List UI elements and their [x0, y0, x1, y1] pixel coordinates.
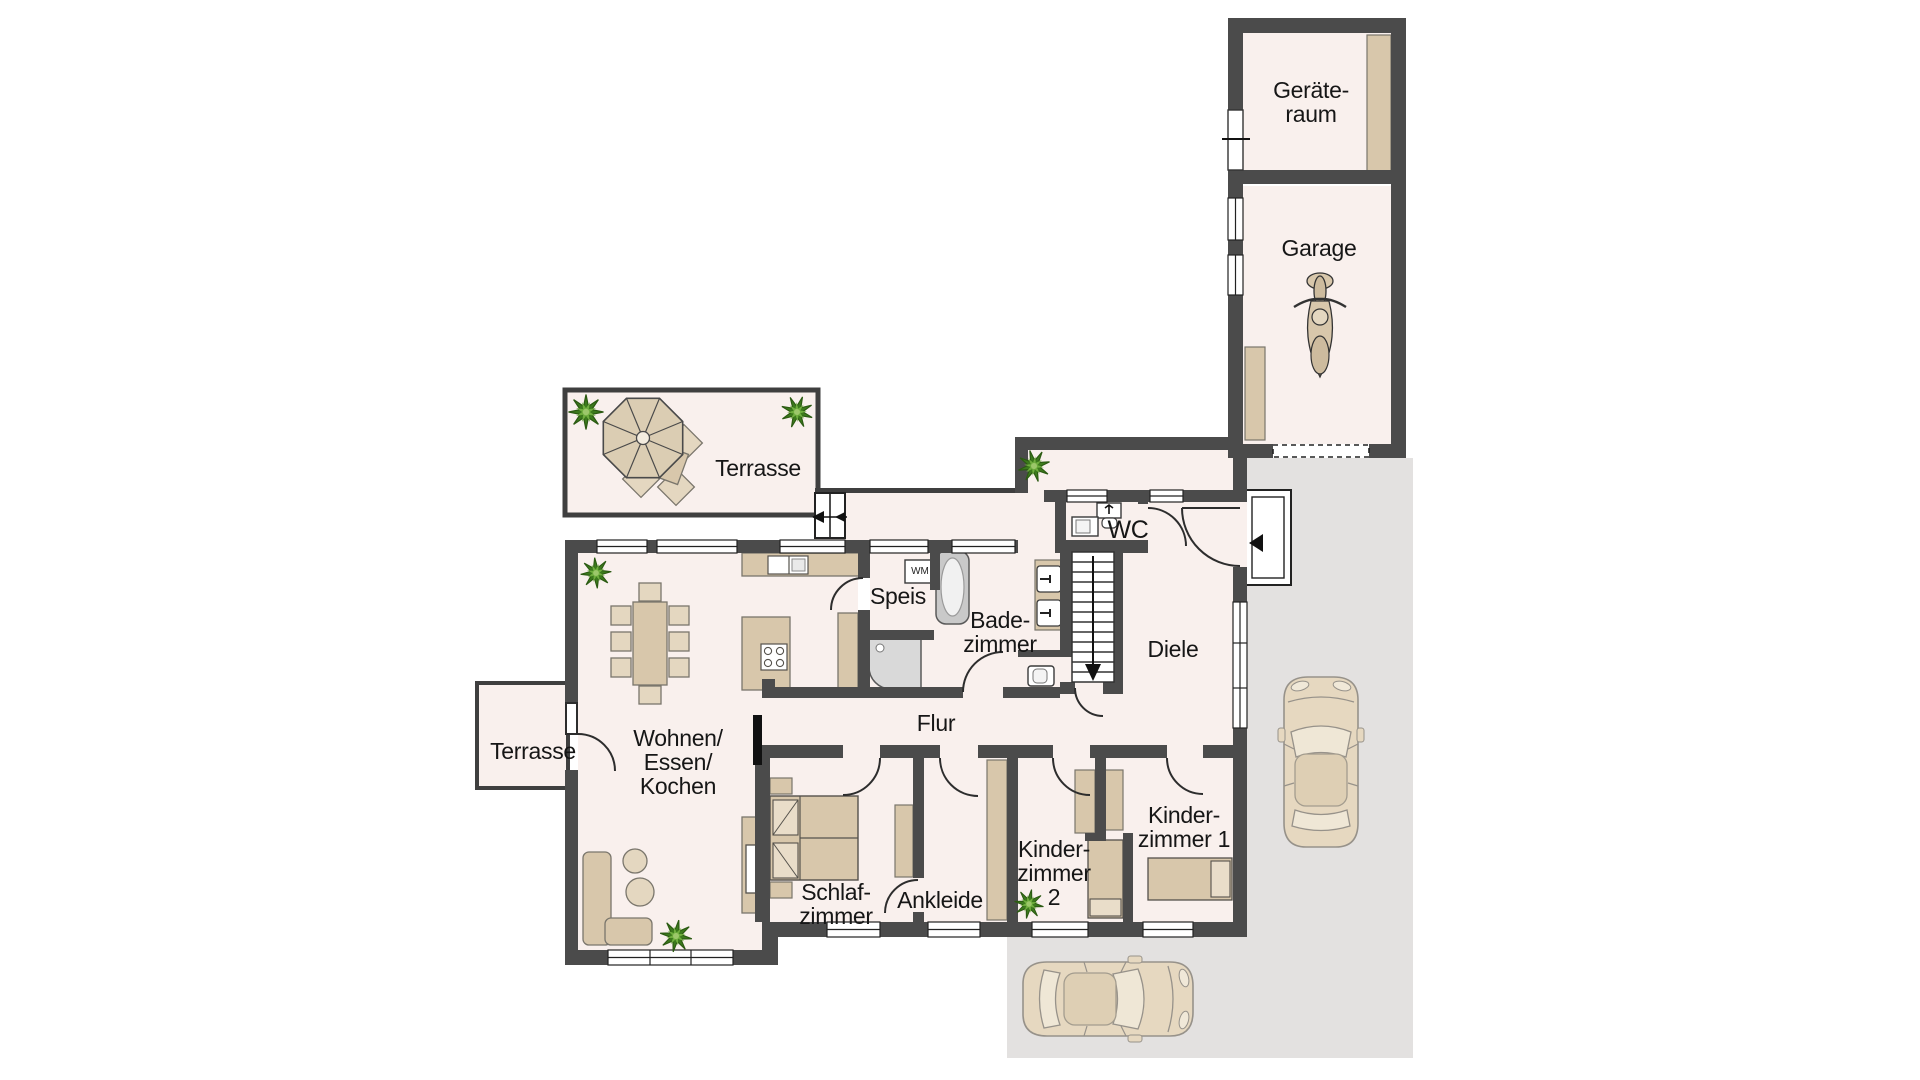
car-icon	[1023, 956, 1193, 1042]
window-garage-2	[1228, 255, 1243, 295]
garage-door	[1273, 445, 1369, 457]
room-label-badezimmer: Bade- zimmer	[963, 608, 1037, 656]
window-living-south	[608, 950, 733, 965]
window-wc	[1067, 490, 1107, 502]
wardrobe-kinderzimmer1	[1105, 770, 1123, 830]
room-label-kinderzimmer1: Kinder- zimmer 1	[1138, 803, 1230, 851]
entrance-threshold	[1233, 502, 1247, 567]
parasol-icon	[603, 398, 682, 477]
room-label-wc: WC	[1107, 518, 1148, 542]
floor-plan: WM	[0, 0, 1920, 1080]
room-label-diele: Diele	[1148, 637, 1199, 661]
wall-section-marker	[753, 715, 762, 765]
dining-table	[633, 602, 667, 685]
room-label-speis: Speis	[870, 584, 926, 608]
floor-plan-drawing: WM	[0, 0, 1920, 1080]
window-kinderzimmer2	[1032, 922, 1088, 937]
room-label-ankleide: Ankleide	[897, 888, 983, 912]
workbench-geraeteraum	[1367, 35, 1391, 172]
wardrobe-ankleide	[987, 760, 1007, 920]
room-label-garage: Garage	[1282, 236, 1357, 260]
sliding-door-terrace	[812, 493, 847, 538]
wardrobe-schlafzimmer	[895, 805, 913, 877]
window-diele-north	[1150, 490, 1183, 502]
entrance-porch	[1245, 490, 1291, 585]
cooktop	[761, 644, 787, 670]
room-label-terrasse-top: Terrasse	[715, 456, 801, 480]
window-ankleide	[928, 922, 980, 937]
wardrobe-kinderzimmer2	[1075, 770, 1095, 833]
shower	[869, 637, 921, 689]
room-label-terrasse-left: Terrasse	[490, 739, 576, 763]
window-north-1	[597, 540, 647, 553]
washing-machine-label: WM	[911, 566, 929, 577]
terrace-left-floor	[477, 683, 568, 788]
coffee-table	[626, 878, 654, 906]
kitchen-tall-cabinet	[838, 613, 858, 690]
room-label-geraeteraum: Geräte- raum	[1273, 78, 1349, 126]
bed-kinderzimmer1	[1148, 858, 1232, 900]
bed-kinderzimmer2	[1088, 840, 1123, 918]
room-label-schlafzimmer: Schlaf- zimmer	[799, 880, 873, 928]
room-label-wohnen: Wohnen/ Essen/ Kochen	[633, 726, 723, 798]
room-label-kinderzimmer2: Kinder- zimmer 2	[1017, 837, 1091, 909]
window-north-2	[657, 540, 737, 553]
bath-vanity	[1035, 560, 1062, 630]
window-north-5	[952, 540, 1015, 553]
plant-icon	[569, 395, 604, 430]
room-label-flur: Flur	[917, 711, 955, 735]
window-north-3	[780, 540, 845, 553]
window-garage-1	[1228, 198, 1243, 240]
garage-shelf	[1245, 347, 1265, 440]
staircase	[1072, 552, 1114, 682]
window-north-4	[870, 540, 928, 553]
car-icon	[1278, 677, 1364, 847]
side-table	[623, 849, 647, 873]
window-east	[1233, 602, 1247, 728]
bath-toilet	[1028, 666, 1054, 686]
window-kinderzimmer1	[1143, 922, 1193, 937]
